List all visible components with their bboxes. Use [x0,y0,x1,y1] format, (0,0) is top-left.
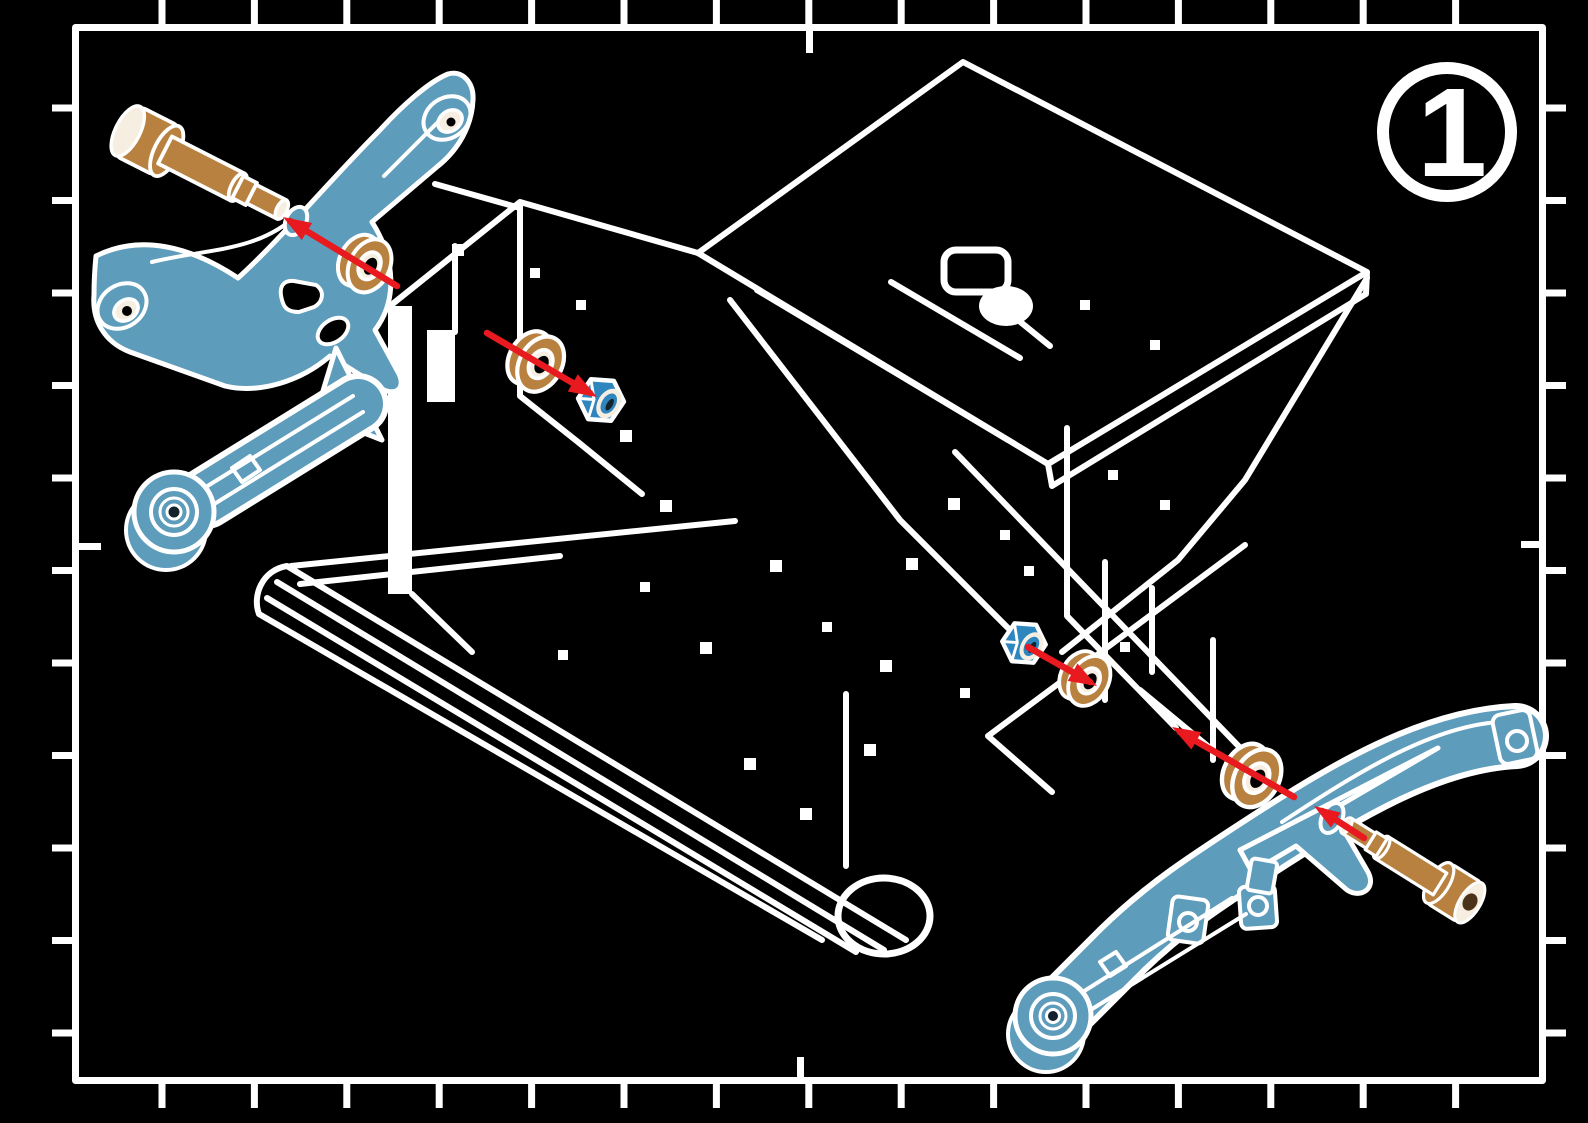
frame-tick [621,0,628,24]
frame-tick [1543,290,1566,297]
assembly-diagram: 1 [0,0,1588,1123]
arm-eyelet [1008,978,1091,1072]
frame-tick [436,0,443,24]
arm-end-boss [1491,709,1539,766]
frame-tick [990,0,997,24]
frame-tick [52,660,75,667]
frame-tick [1360,0,1367,24]
frame-tick [1543,845,1566,852]
frame-tick [805,1084,812,1108]
frame-tick [1267,1084,1274,1108]
frame-tick [52,845,75,852]
bellcrank-arm [201,396,363,506]
frame-tick [1543,660,1566,667]
diagram-page: 1 [0,0,1588,1123]
frame-ticks-top [159,0,1460,24]
frame-tick [52,290,75,297]
step-number: 1 [1417,62,1487,203]
frame-tick [436,1084,443,1108]
frame-tick [1360,1084,1367,1108]
frame-tick [1267,0,1274,24]
frame-tick [990,1084,997,1108]
frame-tick [52,567,75,574]
frame-tick [1543,1030,1566,1037]
frame-tick [52,752,75,759]
chassis-clip-detail [891,250,1050,358]
frame-tick [1543,475,1566,482]
chassis-top-plate [698,62,1367,486]
frame-tick [1452,0,1459,24]
chassis-front-tower [388,184,698,652]
frame-tick [621,1084,628,1108]
chassis-skid-rails [257,521,930,954]
drawing-frame [52,0,1566,1108]
frame-tick [1543,197,1566,204]
frame-tick [1083,0,1090,24]
frame-tick [713,1084,720,1108]
frame-tick [52,105,75,112]
frame-tick [1543,937,1566,944]
frame-tick [52,937,75,944]
frame-tick [713,0,720,24]
frame-tick [1543,752,1566,759]
frame-ticks-bottom [159,1084,1460,1108]
frame-tick [1083,1084,1090,1108]
frame-tick [1175,1084,1182,1108]
bellcrank-eyelet [126,472,214,570]
frame-tick [251,1084,258,1108]
triangle-hole [281,281,322,312]
frame-tick [1543,105,1566,112]
frame-tick [898,1084,905,1108]
chassis-wireframe [257,62,1367,954]
cap-screw-upper [104,101,299,237]
frame-tick [528,1084,535,1108]
frame-tick [52,475,75,482]
frame-tick [1543,382,1566,389]
frame-tick [52,1030,75,1037]
frame-tick [528,0,535,24]
frame-tick [1175,0,1182,24]
frame-tick [52,382,75,389]
frame-tick [159,0,166,24]
step-badge: 1 [1383,62,1511,203]
frame-tick [898,0,905,24]
frame-tick [251,0,258,24]
frame-tick [52,197,75,204]
frame-tick [805,0,812,24]
frame-ticks-right [1543,105,1566,1037]
frame-tick [1543,567,1566,574]
frame-ticks-left [52,105,75,1037]
frame-tick [343,1084,350,1108]
frame-tick [343,0,350,24]
frame-tick [1452,1084,1459,1108]
frame-tick [159,1084,166,1108]
